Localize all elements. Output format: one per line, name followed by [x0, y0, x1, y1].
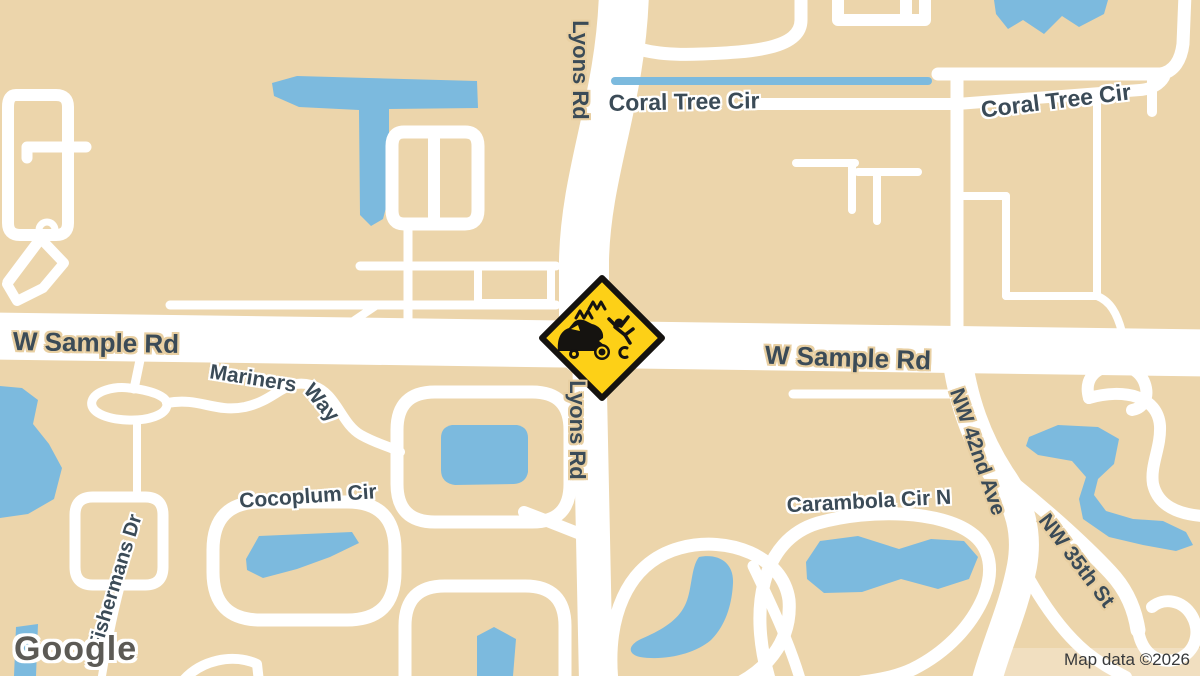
map-attribution: Map data ©2026 — [1064, 650, 1190, 670]
map-canvas — [0, 0, 1200, 676]
map-viewport[interactable]: Lyons Rd Lyons Rd Coral Tree Cir Coral T… — [0, 0, 1200, 676]
water-pond-mariners — [441, 425, 528, 485]
google-logo[interactable]: Google — [14, 630, 137, 669]
